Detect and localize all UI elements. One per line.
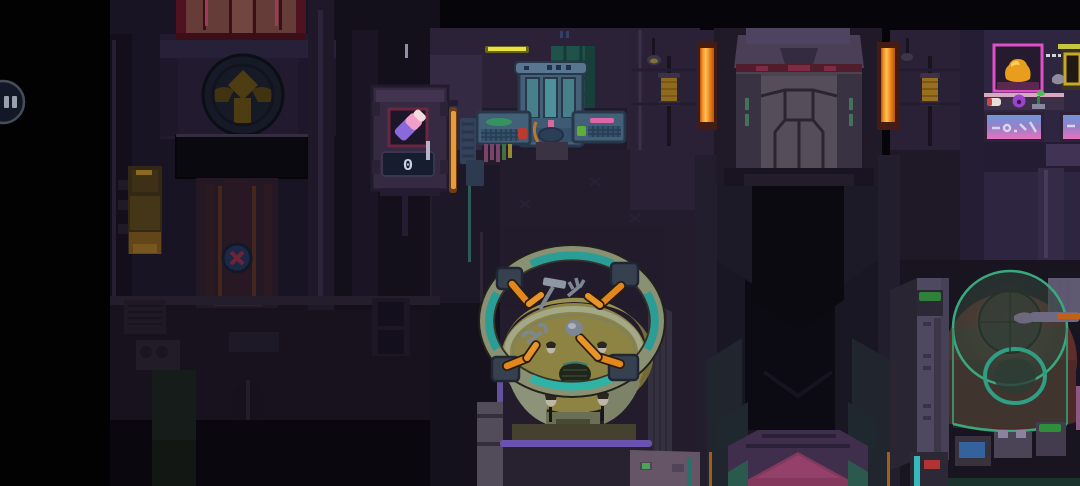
svg-text:0: 0 — [403, 157, 413, 176]
